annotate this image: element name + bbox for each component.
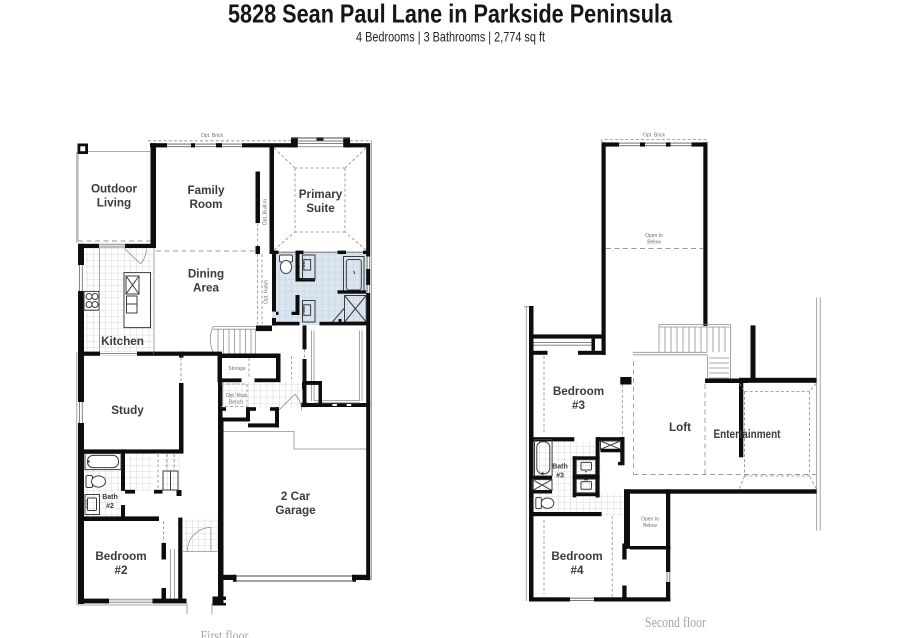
svg-text:Suite: Suite	[306, 202, 335, 215]
svg-text:#3: #3	[572, 399, 586, 412]
svg-text:Garage: Garage	[275, 504, 316, 517]
svg-text:Bath: Bath	[102, 494, 118, 501]
svg-text:#2: #2	[106, 503, 114, 510]
svg-text:#2: #2	[114, 564, 128, 577]
svg-text:Below: Below	[647, 240, 661, 246]
svg-text:Family: Family	[187, 184, 225, 197]
svg-text:Bench: Bench	[229, 400, 243, 406]
svg-text:Area: Area	[193, 282, 219, 295]
svg-text:Open to: Open to	[641, 517, 659, 523]
svg-text:Bedroom: Bedroom	[95, 550, 146, 563]
svg-text:Bedroom: Bedroom	[553, 385, 604, 398]
svg-text:Bath: Bath	[552, 464, 568, 471]
svg-text:Open to: Open to	[645, 233, 663, 239]
svg-text:Second floor: Second floor	[645, 615, 706, 631]
svg-text:First floor: First floor	[201, 629, 249, 638]
svg-text:Primary: Primary	[299, 188, 343, 201]
svg-text:Opt. Hutch: Opt. Hutch	[264, 280, 270, 304]
svg-text:Below: Below	[643, 523, 657, 529]
svg-text:Study: Study	[111, 404, 144, 417]
svg-text:Entertainment: Entertainment	[714, 428, 781, 441]
svg-text:Loft: Loft	[669, 421, 691, 434]
svg-text:Kitchen: Kitchen	[101, 335, 144, 348]
svg-text:Dining: Dining	[188, 268, 224, 281]
svg-text:4 Bedrooms | 3 Bathrooms | 2,7: 4 Bedrooms | 3 Bathrooms | 2,774 sq ft	[356, 29, 545, 45]
svg-text:Storage: Storage	[228, 366, 246, 372]
svg-text:Opt. Mud: Opt. Mud	[226, 393, 247, 399]
svg-text:#4: #4	[570, 564, 584, 577]
svg-text:Living: Living	[97, 197, 131, 210]
svg-text:Bedroom: Bedroom	[551, 550, 602, 563]
svg-text:Opt. Brick: Opt. Brick	[201, 133, 223, 139]
svg-text:2 Car: 2 Car	[281, 490, 311, 503]
svg-text:Room: Room	[189, 198, 222, 211]
svg-text:5828 Sean Paul Lane in Parksid: 5828 Sean Paul Lane in Parkside Peninsul…	[228, 0, 672, 29]
svg-text:#3: #3	[556, 473, 564, 480]
svg-text:Opt. Built-In: Opt. Built-In	[263, 199, 269, 226]
svg-text:Opt. Brick: Opt. Brick	[643, 133, 665, 139]
svg-text:Outdoor: Outdoor	[91, 183, 138, 196]
